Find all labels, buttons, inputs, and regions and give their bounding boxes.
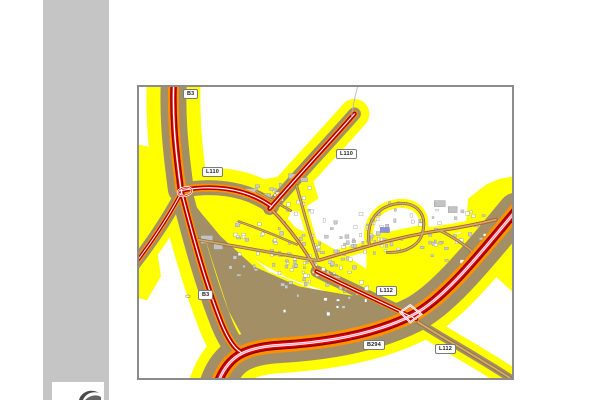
- sidebar-panel: [43, 0, 109, 400]
- map-frame[interactable]: B3 L110 L110 L112 B3 B294 L112: [137, 85, 514, 380]
- road-label-l110-west: L110: [202, 167, 223, 177]
- map-canvas: [139, 87, 512, 378]
- road-label-l112-center: L112: [376, 286, 397, 296]
- logo-swoosh-icon: [52, 382, 104, 400]
- logo-box: [52, 382, 104, 400]
- road-label-b3-south: B3: [198, 290, 213, 300]
- road-label-b3-north: B3: [183, 89, 198, 99]
- road-label-l112-southeast: L112: [435, 344, 456, 354]
- road-label-l110-northeast: L110: [336, 149, 357, 159]
- road-label-b294: B294: [363, 340, 385, 350]
- page: B3 L110 L110 L112 B3 B294 L112: [0, 0, 600, 400]
- building-blue: [380, 228, 389, 233]
